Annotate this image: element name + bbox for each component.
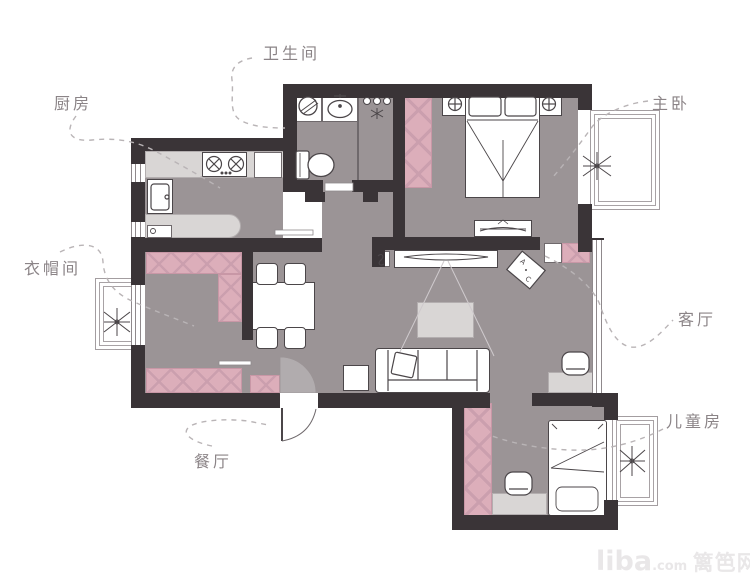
leader-bathroom — [232, 58, 285, 128]
label-living-room: 客厅 — [678, 306, 716, 330]
plant-icon — [620, 446, 645, 476]
tv-icon — [404, 254, 488, 260]
leader-dining — [186, 420, 268, 446]
ac-unit-icon: A C — [507, 251, 545, 289]
leader-kids — [492, 429, 663, 450]
stove-icon — [207, 157, 244, 174]
leader-kitchen — [70, 116, 220, 188]
desk-chair — [562, 352, 589, 375]
label-kids-room: 儿童房 — [666, 408, 723, 432]
watermark-suffix: .com — [652, 559, 687, 574]
basin-icon — [328, 101, 352, 118]
plan-linework: A C — [0, 0, 750, 586]
shower-icon — [364, 98, 391, 120]
kids-desk-chair — [505, 472, 532, 495]
plant-icon — [104, 308, 130, 336]
toilet-icon — [296, 151, 334, 179]
kitchen-sink-icon — [151, 184, 169, 210]
sofa-lines — [388, 350, 477, 391]
watermark-site: 篱笆网 — [693, 551, 750, 575]
plants — [104, 152, 645, 476]
leader-living — [545, 256, 673, 347]
pillow — [505, 97, 536, 116]
label-kitchen: 厨房 — [54, 90, 92, 114]
label-dining-room: 餐厅 — [194, 448, 232, 472]
kids-room-details — [505, 424, 604, 511]
label-bathroom: 卫生间 — [263, 40, 320, 64]
watermark: liba.com 篱笆网 — [596, 546, 750, 577]
nightstand-lamp-icon — [543, 98, 556, 111]
bed-linen-lines — [467, 120, 538, 197]
plant-icon — [583, 152, 611, 180]
label-leader-lines — [60, 58, 673, 450]
nightstand-lamp-icon — [449, 98, 462, 111]
master-bedroom-details — [449, 97, 556, 231]
floor-plan: A C — [0, 0, 750, 586]
living-room-details: A C — [378, 251, 589, 391]
sofa-pillow — [391, 352, 417, 378]
kitchen-details — [151, 157, 244, 234]
kids-bed-lines — [551, 424, 604, 511]
entry-door — [280, 357, 317, 441]
tv-icon — [480, 220, 526, 231]
media-socket-glyph — [378, 255, 384, 266]
pillow — [469, 97, 501, 116]
label-master-bedroom: 主卧 — [652, 90, 690, 114]
tv-projection-lines — [398, 261, 494, 356]
bathroom-fixtures — [296, 94, 391, 180]
door-thresholds — [219, 183, 353, 365]
watermark-brand: liba — [596, 546, 652, 577]
door-swing-arc — [282, 409, 316, 441]
label-cloakroom: 衣帽间 — [24, 255, 81, 279]
